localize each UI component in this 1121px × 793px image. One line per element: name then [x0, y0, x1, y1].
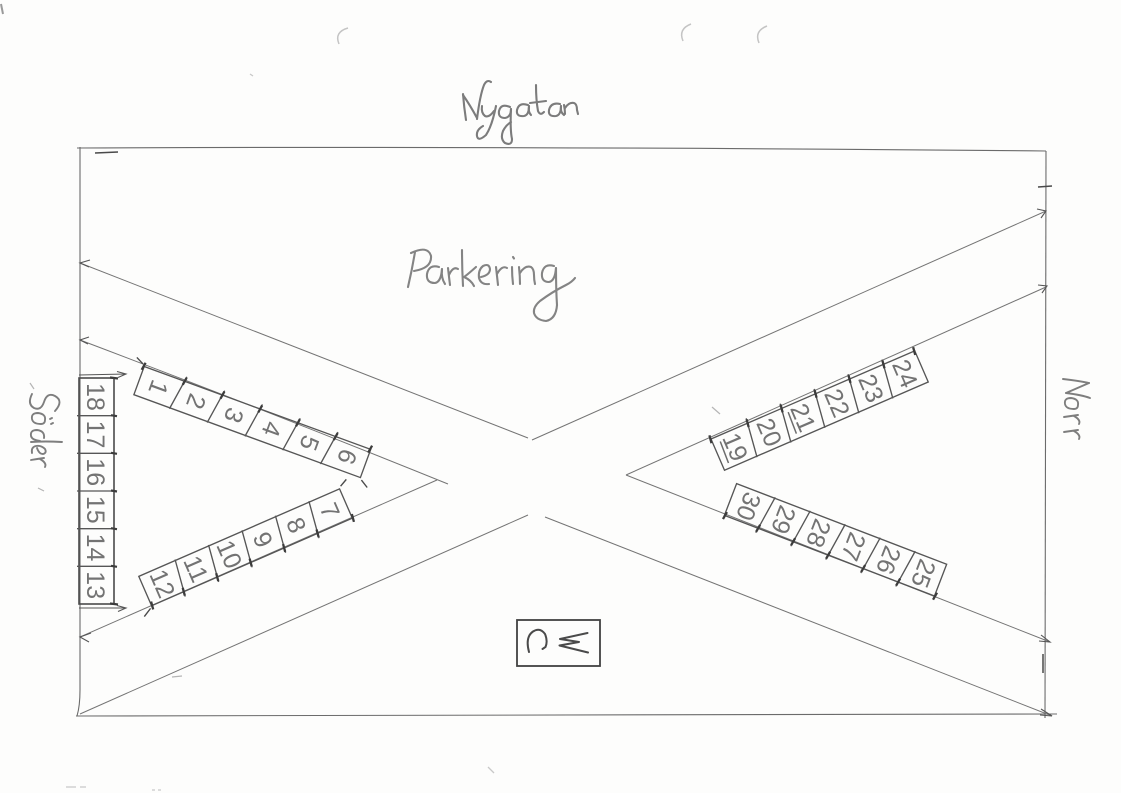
svg-text:18: 18 — [81, 383, 109, 411]
svg-text:14: 14 — [81, 534, 109, 562]
svg-text:15: 15 — [81, 496, 109, 524]
svg-text:16: 16 — [81, 458, 109, 486]
svg-text:17: 17 — [81, 421, 109, 449]
svg-text:13: 13 — [81, 571, 109, 599]
